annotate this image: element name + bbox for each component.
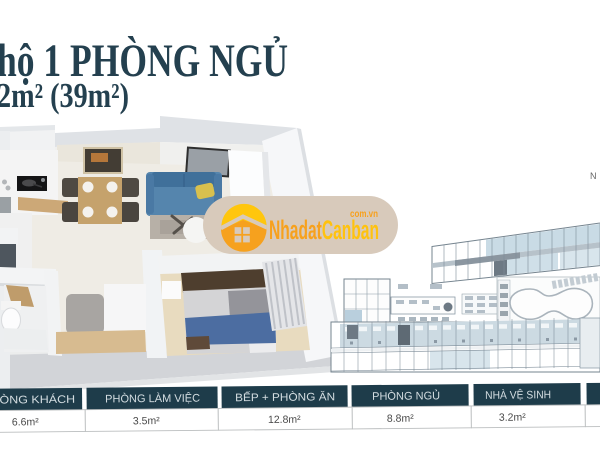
- svg-text:PHÒNG LÀM VIỆC: PHÒNG LÀM VIỆC: [105, 392, 200, 406]
- svg-text:3.5m²: 3.5m²: [133, 415, 160, 427]
- svg-text:12.8m²: 12.8m²: [268, 414, 301, 426]
- svg-text:2m² (39m²): 2m² (39m²): [0, 76, 129, 115]
- svg-text:com.vn: com.vn: [350, 209, 378, 220]
- svg-text:8.8m²: 8.8m²: [387, 413, 414, 425]
- svg-text:NHÀ VỆ SINH: NHÀ VỆ SINH: [485, 388, 551, 402]
- svg-text:PHÒNG NGỦ: PHÒNG NGỦ: [372, 389, 440, 403]
- svg-text:6.6m²: 6.6m²: [12, 416, 39, 428]
- svg-text:3.2m²: 3.2m²: [499, 412, 526, 424]
- svg-text:PHÒNG KHÁCH: PHÒNG KHÁCH: [0, 393, 75, 407]
- svg-text:N: N: [590, 171, 597, 181]
- svg-text:BẾP + PHÒNG ĂN: BẾP + PHÒNG ĂN: [235, 390, 335, 404]
